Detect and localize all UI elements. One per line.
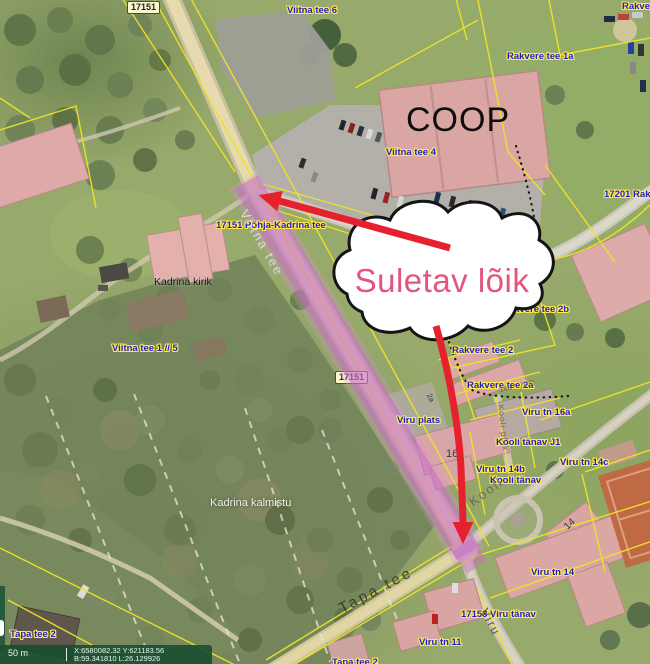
panel-edge-handle[interactable] — [0, 620, 4, 636]
panel-edge-strip — [0, 586, 5, 650]
arrow-icon-down — [436, 326, 463, 526]
scale-label: 50 m — [8, 648, 28, 658]
cursor-coordinates: X:6580082.32 Y:621183.56 B:59.341810 L:2… — [74, 647, 164, 663]
closed-section-callout-text: Suletav lõik — [352, 262, 532, 300]
map-viewport[interactable]: 17151 17151 Viitna tee 6 Rakvere tee Rak… — [0, 0, 650, 664]
scale-tick — [66, 648, 67, 661]
map-statusbar: 50 m X:6580082.32 Y:621183.56 B:59.34181… — [0, 645, 212, 664]
coords-bl: B:59.341810 L:26.129926 — [74, 655, 164, 663]
annotation-layer — [0, 0, 650, 664]
